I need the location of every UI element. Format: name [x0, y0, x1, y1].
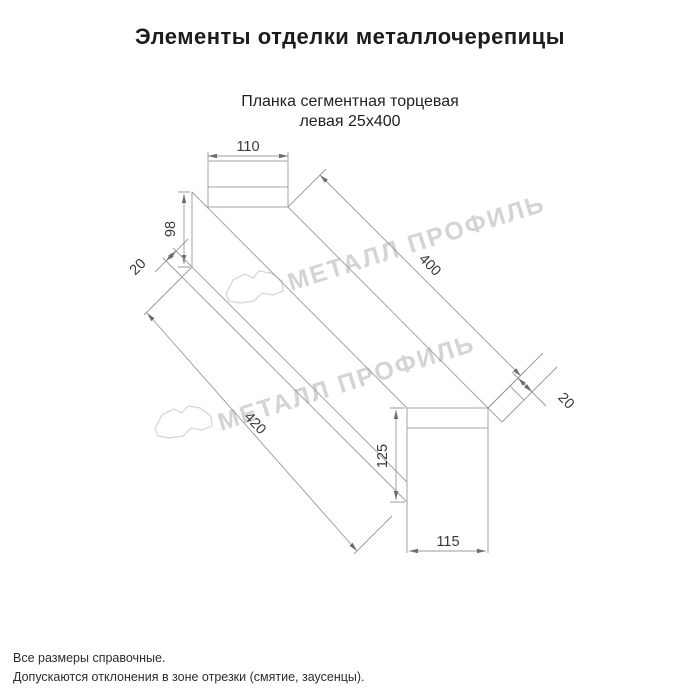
left-end-flange: [208, 161, 288, 207]
dim-label-115: 115: [436, 534, 459, 550]
watermark-lower: МЕТАЛЛ ПРОФИЛЬ: [155, 329, 479, 438]
dim-left-height: 98: [163, 192, 190, 267]
footer-notes: Все размеры справочные. Допускаются откл…: [13, 649, 365, 686]
footer-note-2: Допускаются отклонения в зоне отрезки (с…: [13, 668, 365, 687]
brand-logo-outline-icon: [155, 406, 212, 438]
footer-note-1: Все размеры справочные.: [13, 649, 365, 668]
right-end-fold: [488, 386, 524, 422]
dim-label-110: 110: [236, 139, 259, 155]
dim-label-98: 98: [163, 221, 179, 237]
technical-drawing: МЕТАЛЛ ПРОФИЛЬ МЕТАЛЛ ПРОФИЛЬ 110: [0, 0, 700, 700]
dim-label-20-right: 20: [554, 390, 577, 413]
dim-label-20-left: 20: [127, 256, 150, 279]
bottom-fold-edge: [182, 277, 407, 502]
dim-top-width: 110: [208, 139, 288, 160]
left-end-edge: [182, 192, 192, 277]
watermark-upper: МЕТАЛЛ ПРОФИЛЬ: [226, 189, 549, 303]
dim-bottom-width: 115: [409, 534, 486, 551]
dim-label-125: 125: [375, 444, 391, 468]
brand-logo-outline-icon: [226, 271, 283, 303]
front-top-edge: [192, 192, 407, 408]
dim-right-height: 125: [375, 408, 405, 502]
drawing-page: Элементы отделки металлочерепицы Планка …: [0, 0, 700, 700]
right-end-plate: [407, 408, 488, 553]
dim-left-fold: 20: [127, 239, 192, 279]
